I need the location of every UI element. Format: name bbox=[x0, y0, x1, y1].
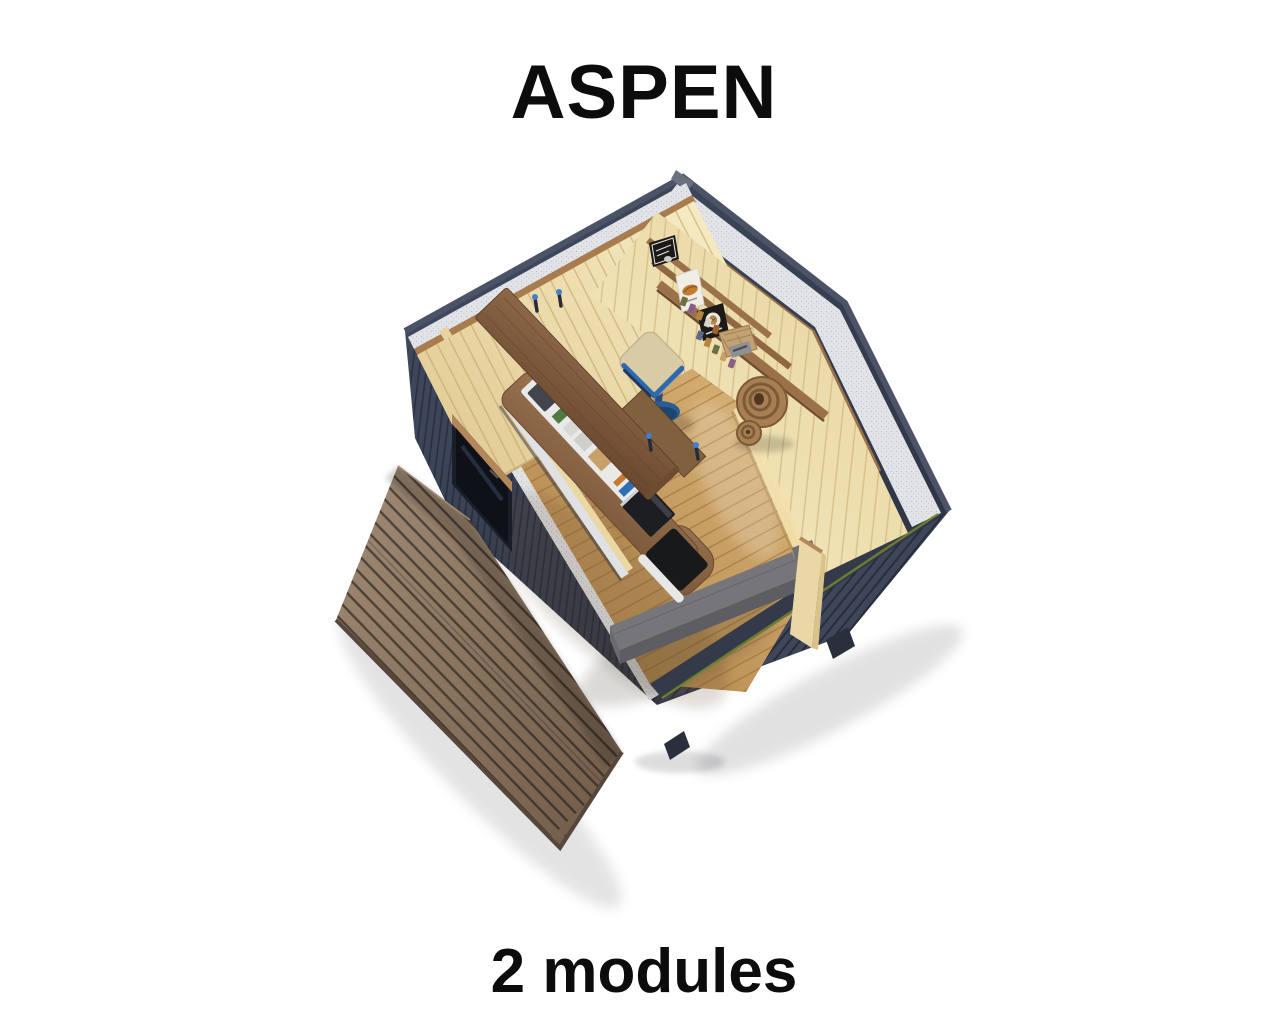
render-scene bbox=[0, 0, 1288, 1014]
modules-caption: 2 modules bbox=[0, 941, 1288, 1003]
building-render-illustration bbox=[0, 0, 1288, 1014]
page: ASPEN bbox=[0, 0, 1288, 1014]
